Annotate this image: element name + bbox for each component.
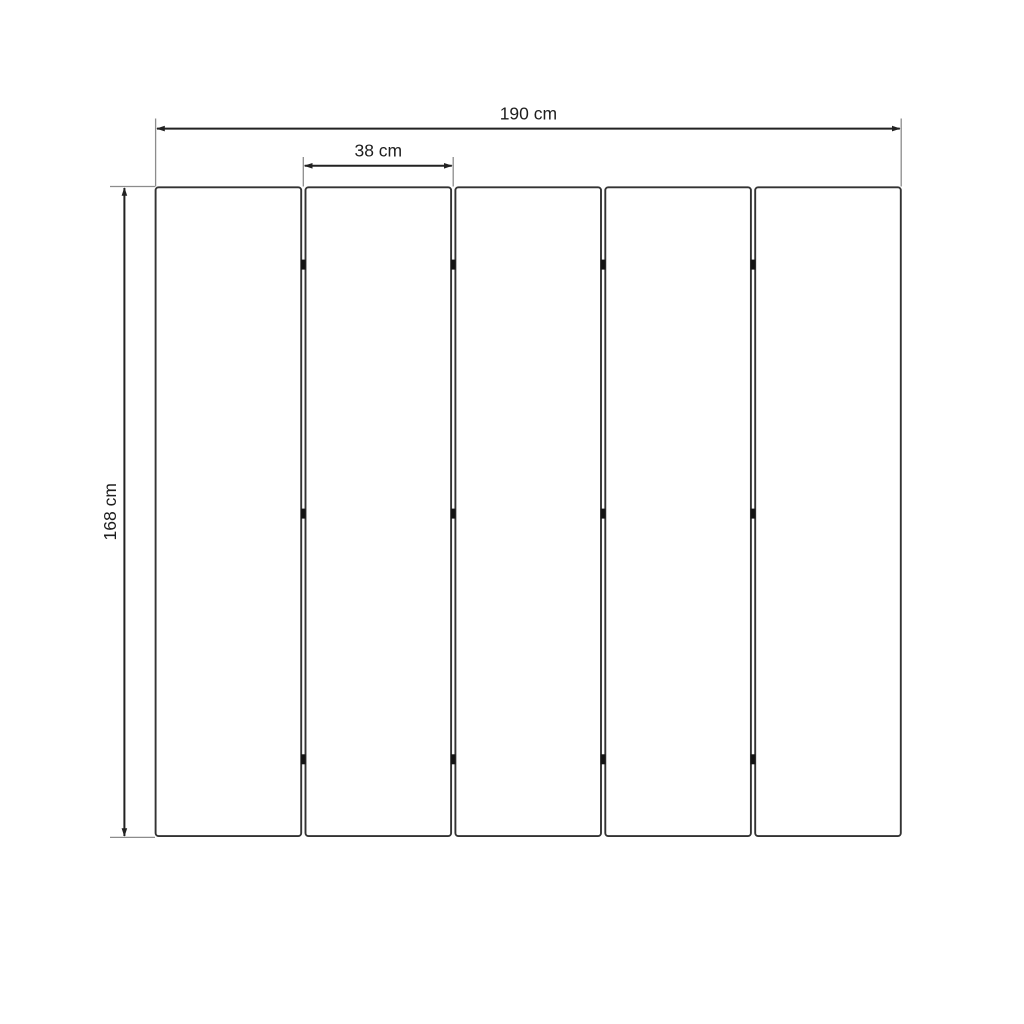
svg-text:168 cm: 168 cm <box>100 483 120 540</box>
svg-text:38 cm: 38 cm <box>354 141 402 161</box>
svg-text:190 cm: 190 cm <box>500 104 557 124</box>
